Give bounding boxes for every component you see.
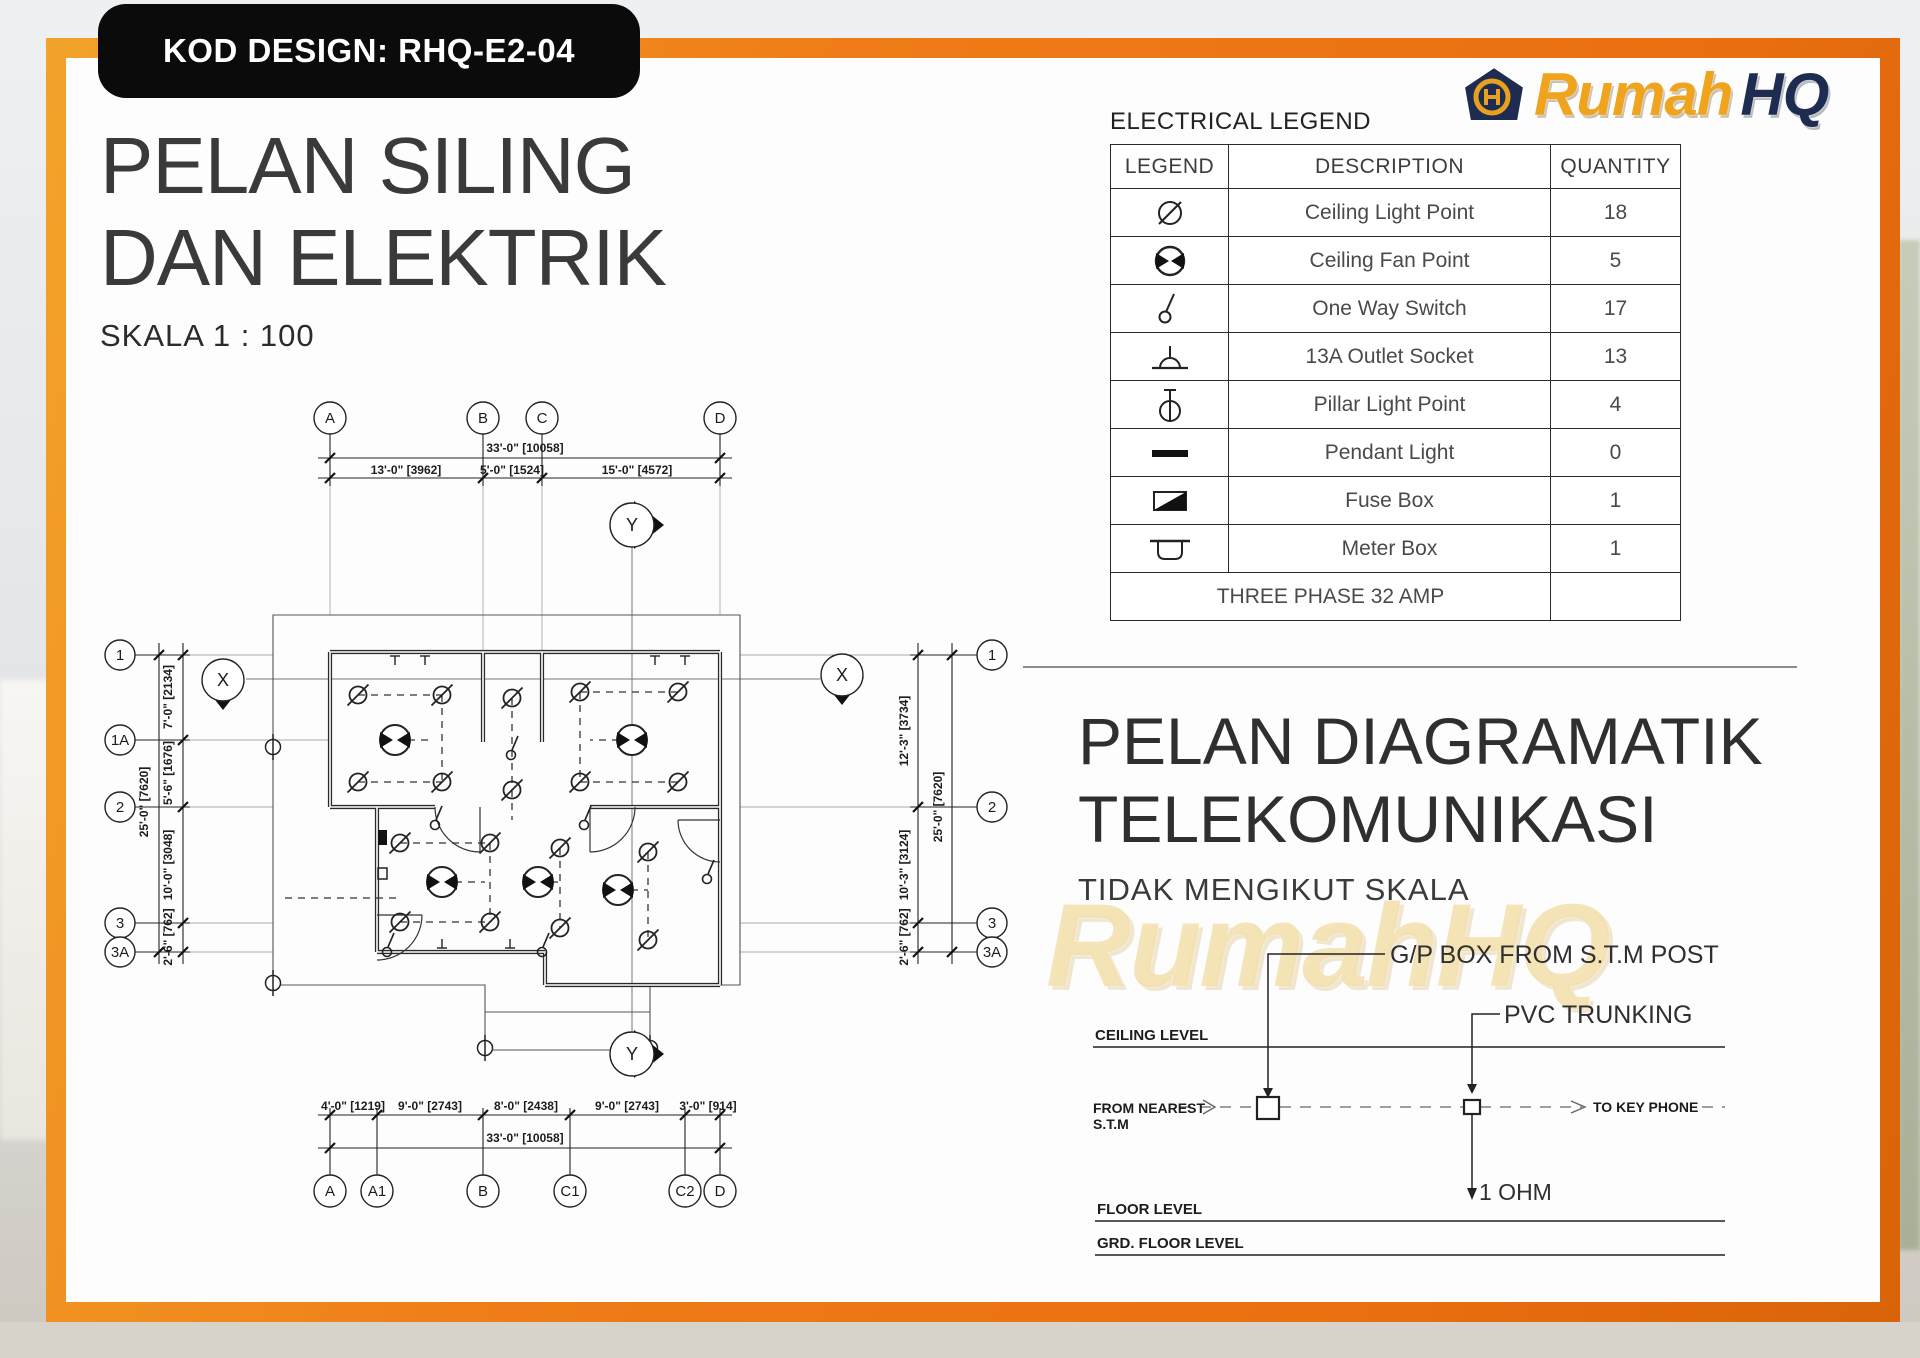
svg-text:10'-3" [3124]: 10'-3" [3124] xyxy=(897,830,911,901)
fuse-box xyxy=(378,830,387,845)
legend-footer-empty xyxy=(1551,573,1681,621)
dimension-ticks xyxy=(154,453,957,1153)
svg-text:C2: C2 xyxy=(675,1183,694,1200)
svg-text:PVC TRUNKING: PVC TRUNKING xyxy=(1504,1001,1692,1029)
legend-quantity: 0 xyxy=(1551,429,1681,477)
telecom-subtitle: TIDAK MENGIKUT SKALA xyxy=(1078,872,1763,908)
svg-text:2: 2 xyxy=(988,799,996,816)
legend-description: Meter Box xyxy=(1229,525,1551,573)
outlet-socket-symbol xyxy=(1140,337,1200,377)
fuse-box-symbol xyxy=(1140,481,1200,521)
ceiling-fan-symbol xyxy=(1140,241,1200,281)
pendant-light-symbol xyxy=(1140,433,1200,473)
level-lines xyxy=(1093,1047,1725,1255)
legend-quantity: 17 xyxy=(1551,285,1681,333)
svg-text:25'-0" [7620]: 25'-0" [7620] xyxy=(137,767,151,838)
dimension-lines xyxy=(135,434,977,1175)
svg-text:2'-6" [762]: 2'-6" [762] xyxy=(161,908,175,965)
svg-text:Y: Y xyxy=(626,1044,638,1064)
walls xyxy=(330,652,720,985)
section-divider xyxy=(1023,666,1797,668)
ceiling-light-symbol xyxy=(1140,193,1200,233)
legend-quantity: 5 xyxy=(1551,237,1681,285)
svg-text:33'-0" [10058]: 33'-0" [10058] xyxy=(486,1131,563,1145)
table-row: 13A Outlet Socket 13 xyxy=(1111,333,1681,381)
design-code-label: KOD DESIGN: RHQ-E2-04 xyxy=(163,32,575,70)
background-pavement xyxy=(0,1322,1920,1358)
flow-arrow xyxy=(1571,1101,1585,1113)
svg-text:3'-0" [914]: 3'-0" [914] xyxy=(679,1099,736,1113)
svg-text:TO KEY PHONE: TO KEY PHONE xyxy=(1593,1099,1698,1115)
legend-header: LEGEND xyxy=(1111,145,1229,189)
table-row: Pendant Light 0 xyxy=(1111,429,1681,477)
svg-text:2'-6" [762]: 2'-6" [762] xyxy=(897,908,911,965)
svg-text:C1: C1 xyxy=(560,1183,579,1200)
legend-quantity: 18 xyxy=(1551,189,1681,237)
svg-text:1: 1 xyxy=(116,647,124,664)
svg-text:5'-6" [1676]: 5'-6" [1676] xyxy=(161,741,175,805)
background-hedge xyxy=(1898,240,1920,1250)
quantity-header: QUANTITY xyxy=(1551,145,1681,189)
svg-text:8'-0" [2438]: 8'-0" [2438] xyxy=(494,1099,558,1113)
rumahhq-logo-icon xyxy=(1462,65,1526,125)
legend-quantity: 1 xyxy=(1551,477,1681,525)
svg-text:25'-0" [7620]: 25'-0" [7620] xyxy=(931,772,945,843)
svg-text:7'-0" [2134]: 7'-0" [2134] xyxy=(161,665,175,729)
svg-text:3A: 3A xyxy=(111,944,129,961)
svg-text:Y: Y xyxy=(626,515,638,535)
svg-text:9'-0" [2743]: 9'-0" [2743] xyxy=(595,1099,659,1113)
telecom-title-line1: PELAN DIAGRAMATIK xyxy=(1078,702,1763,780)
section-markers: X X Y Y xyxy=(201,501,864,1078)
svg-text:FROM NEAREST: FROM NEAREST xyxy=(1093,1100,1205,1116)
svg-text:2: 2 xyxy=(116,799,124,816)
svg-text:3: 3 xyxy=(116,915,124,932)
logo-text-rumah: Rumah xyxy=(1534,60,1732,129)
legend-description: 13A Outlet Socket xyxy=(1229,333,1551,381)
svg-text:3: 3 xyxy=(988,915,996,932)
arrowheads xyxy=(1263,1084,1477,1200)
svg-text:X: X xyxy=(836,665,848,685)
svg-text:A: A xyxy=(325,410,335,427)
svg-text:B: B xyxy=(478,1183,488,1200)
leader-lines xyxy=(1268,954,1500,1190)
table-row: Fuse Box 1 xyxy=(1111,477,1681,525)
legend-description: One Way Switch xyxy=(1229,285,1551,333)
svg-text:X: X xyxy=(217,670,229,690)
sheet-title-line1: PELAN SILING xyxy=(100,120,666,212)
meter-box xyxy=(378,868,387,879)
svg-text:33'-0" [10058]: 33'-0" [10058] xyxy=(486,441,563,455)
svg-text:10'-0" [3048]: 10'-0" [3048] xyxy=(161,830,175,901)
sheet-title: PELAN SILING DAN ELEKTRIK SKALA 1 : 100 xyxy=(100,120,666,354)
legend-description: Ceiling Fan Point xyxy=(1229,237,1551,285)
svg-text:5'-0" [1524]: 5'-0" [1524] xyxy=(480,463,544,477)
svg-text:1A: 1A xyxy=(111,732,129,749)
svg-text:A: A xyxy=(325,1183,335,1200)
svg-text:4'-0" [1219]: 4'-0" [1219] xyxy=(321,1099,385,1113)
legend-footer-row: THREE PHASE 32 AMP xyxy=(1111,573,1681,621)
svg-text:GRD. FLOOR LEVEL: GRD. FLOOR LEVEL xyxy=(1097,1235,1244,1252)
svg-text:13'-0" [3962]: 13'-0" [3962] xyxy=(371,463,442,477)
telecom-title-line2: TELEKOMUNIKASI xyxy=(1078,780,1763,858)
electrical-legend-table: LEGEND DESCRIPTION QUANTITY Ceiling Ligh… xyxy=(1110,144,1681,621)
table-row: Ceiling Fan Point 5 xyxy=(1111,237,1681,285)
svg-text:S.T.M: S.T.M xyxy=(1093,1116,1129,1132)
svg-text:9'-0" [2743]: 9'-0" [2743] xyxy=(398,1099,462,1113)
gp-box xyxy=(1257,1097,1279,1119)
sheet-title-line2: DAN ELEKTRIK xyxy=(100,212,666,304)
legend-description: Fuse Box xyxy=(1229,477,1551,525)
ceiling-electrical-floor-plan: 33'-0" [10058] 13'-0" [3962] 5'-0" [1524… xyxy=(90,400,1010,1225)
trunking-box xyxy=(1464,1100,1480,1114)
svg-text:C: C xyxy=(537,410,548,427)
telecom-diagram: G/P BOX FROM S.T.M POST PVC TRUNKING CEI… xyxy=(1085,940,1760,1270)
legend-header-row: LEGEND DESCRIPTION QUANTITY xyxy=(1111,145,1681,189)
grid-bubbles xyxy=(105,402,1007,1207)
telecom-section-title: PELAN DIAGRAMATIK TELEKOMUNIKASI TIDAK M… xyxy=(1078,702,1763,908)
svg-text:D: D xyxy=(715,410,726,427)
grid-bubble-labels: A B C D A A1 B C1 C2 D 1 1A 2 3 3A 1 2 3… xyxy=(111,410,1001,1200)
pillar-light-symbol xyxy=(1140,385,1200,425)
one-way-switch-symbol xyxy=(1140,289,1200,329)
svg-text:12'-3" [3734]: 12'-3" [3734] xyxy=(897,696,911,767)
svg-text:B: B xyxy=(478,410,488,427)
wall-cores xyxy=(330,652,720,985)
svg-text:G/P BOX FROM S.T.M POST: G/P BOX FROM S.T.M POST xyxy=(1390,941,1719,969)
legend-description: Ceiling Light Point xyxy=(1229,189,1551,237)
svg-text:D: D xyxy=(715,1183,726,1200)
meter-box-symbol xyxy=(1140,529,1200,569)
rumahhq-logo: Rumah HQ xyxy=(1462,60,1828,129)
table-row: Meter Box 1 xyxy=(1111,525,1681,573)
legend-footer: THREE PHASE 32 AMP xyxy=(1111,573,1551,621)
legend-description: Pendant Light xyxy=(1229,429,1551,477)
sheet-scale: SKALA 1 : 100 xyxy=(100,318,666,354)
table-row: One Way Switch 17 xyxy=(1111,285,1681,333)
svg-text:FLOOR LEVEL: FLOOR LEVEL xyxy=(1097,1201,1202,1218)
svg-text:1: 1 xyxy=(988,647,996,664)
legend-quantity: 1 xyxy=(1551,525,1681,573)
legend-description: Pillar Light Point xyxy=(1229,381,1551,429)
table-row: Pillar Light Point 4 xyxy=(1111,381,1681,429)
ceiling-light-points xyxy=(348,682,689,951)
description-header: DESCRIPTION xyxy=(1229,145,1551,189)
svg-text:1 OHM: 1 OHM xyxy=(1479,1179,1552,1205)
svg-text:CEILING LEVEL: CEILING LEVEL xyxy=(1095,1027,1208,1044)
legend-quantity: 4 xyxy=(1551,381,1681,429)
dimension-texts: 33'-0" [10058] 13'-0" [3962] 5'-0" [1524… xyxy=(137,441,945,1145)
electrical-legend: ELECTRICAL LEGEND LEGEND DESCRIPTION QUA… xyxy=(1110,108,1681,621)
telecom-labels: G/P BOX FROM S.T.M POST PVC TRUNKING CEI… xyxy=(1093,941,1719,1252)
logo-text-hq: HQ xyxy=(1740,60,1828,129)
svg-text:A1: A1 xyxy=(368,1183,386,1200)
svg-text:3A: 3A xyxy=(983,944,1001,961)
table-row: Ceiling Light Point 18 xyxy=(1111,189,1681,237)
switches xyxy=(383,736,715,957)
svg-text:15'-0" [4572]: 15'-0" [4572] xyxy=(602,463,673,477)
design-code-badge: KOD DESIGN: RHQ-E2-04 xyxy=(98,4,640,98)
legend-quantity: 13 xyxy=(1551,333,1681,381)
